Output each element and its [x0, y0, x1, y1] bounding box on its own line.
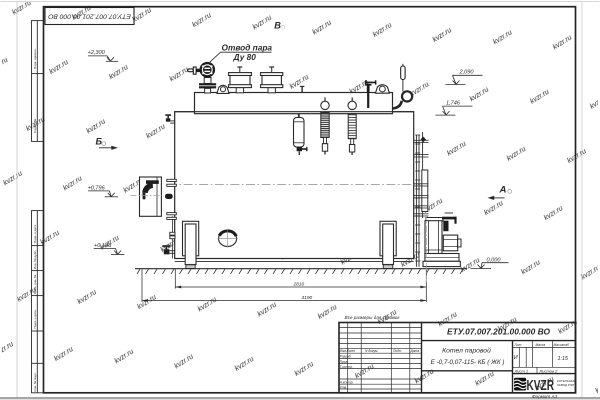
svg-text:1:15: 1:15: [558, 356, 569, 362]
svg-text:Все размеры для справок: Все размеры для справок: [345, 315, 401, 320]
svg-text:Дата: Дата: [410, 349, 420, 353]
svg-text:1,746: 1,746: [446, 101, 461, 107]
svg-text:3190: 3190: [302, 295, 313, 301]
svg-text:Инв. № подл.: Инв. № подл.: [33, 372, 37, 391]
svg-text:ЕТУ.07.007.201.00.000 ВО: ЕТУ.07.007.201.00.000 ВО: [447, 326, 551, 336]
svg-text:Лит.: Лит.: [514, 343, 523, 347]
svg-text:2,090: 2,090: [459, 70, 475, 76]
svg-text:Изм.Лист: Изм.Лист: [340, 349, 356, 353]
svg-text:2810: 2810: [293, 281, 305, 287]
svg-text:ЕТУ.07.007.201.00.000 ВО: ЕТУ.07.007.201.00.000 ВО: [47, 13, 130, 20]
svg-text:Масса: Масса: [536, 343, 546, 347]
svg-text:Б: Б: [96, 137, 103, 147]
svg-text:А: А: [499, 185, 507, 196]
svg-text:Т.контр.: Т.контр.: [340, 365, 353, 369]
svg-text:Е -0,7-0,07-115- КБ ( ЖК ): Е -0,7-0,07-115- КБ ( ЖК ): [431, 359, 505, 366]
svg-text:N докум.: N докум.: [365, 349, 378, 353]
svg-text:Н.контр.: Н.контр.: [340, 381, 354, 385]
svg-text:Разраб.: Разраб.: [340, 355, 352, 359]
svg-text:Листов 2: Листов 2: [539, 368, 559, 373]
svg-text:Справ. №: Справ. №: [33, 118, 37, 133]
svg-text:Подп. и дата: Подп. и дата: [33, 224, 37, 243]
svg-text:Взам. инв. №: Взам. инв. №: [33, 274, 37, 294]
svg-text:+2,300: +2,300: [88, 50, 106, 56]
svg-text:Подп.: Подп.: [393, 349, 402, 353]
svg-text:Инв. № дубл.: Инв. № дубл.: [33, 250, 37, 269]
svg-text:Котел паровой: Котел паровой: [442, 347, 491, 355]
svg-text:KVZR: KVZR: [527, 377, 555, 394]
svg-text:Отвод пара: Отвод пара: [222, 42, 273, 52]
svg-text:Масштаб: Масштаб: [554, 343, 570, 347]
svg-text:В: В: [274, 20, 281, 30]
svg-text:ЗАВОД РЭП: ЗАВОД РЭП: [557, 383, 574, 387]
svg-text:Перв. примен.: Перв. примен.: [33, 48, 37, 69]
svg-text:Ду 80: Ду 80: [233, 52, 257, 62]
svg-text:Утв.: Утв.: [340, 386, 348, 390]
svg-text:Подп. и дата: Подп. и дата: [33, 310, 37, 329]
svg-text:Формат А3: Формат А3: [532, 394, 558, 399]
svg-text:И: И: [514, 355, 518, 361]
svg-text:Пров.: Пров.: [340, 360, 349, 364]
svg-text:Лист 1: Лист 1: [514, 368, 529, 373]
